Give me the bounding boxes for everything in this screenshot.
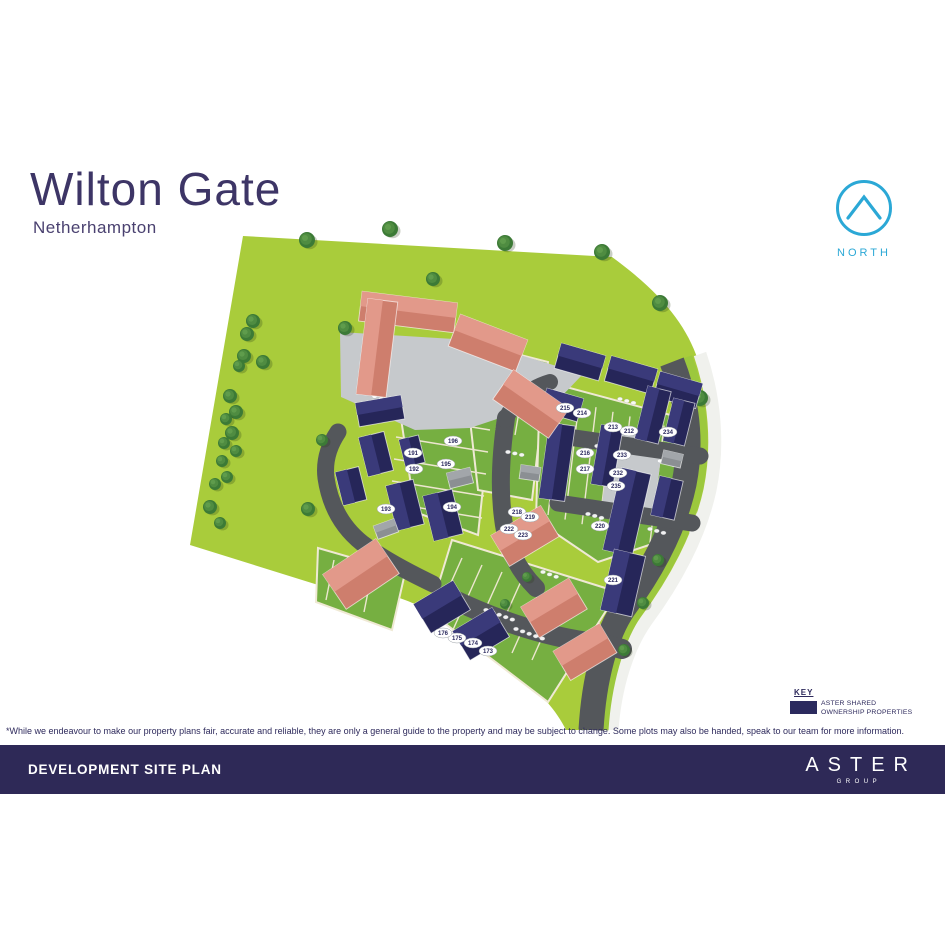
svg-text:216: 216 xyxy=(580,451,591,457)
site-plan-map: 1731741751761911921931941951962122132142… xyxy=(0,0,945,945)
plot-marker-217: 217 xyxy=(576,464,594,474)
svg-text:194: 194 xyxy=(447,505,458,511)
plot-marker-221: 221 xyxy=(604,575,622,585)
plot-marker-234: 234 xyxy=(659,427,677,437)
svg-text:223: 223 xyxy=(518,533,529,539)
brand-subtitle: GROUP xyxy=(796,779,917,785)
svg-text:213: 213 xyxy=(608,425,619,431)
garage xyxy=(519,465,541,482)
aster-group-logo: ASTER GROUP xyxy=(796,754,917,785)
plot-marker-193: 193 xyxy=(377,504,395,514)
plot-marker-176: 176 xyxy=(434,628,452,638)
svg-text:175: 175 xyxy=(452,636,463,642)
svg-text:220: 220 xyxy=(595,524,606,530)
footer-bar: DEVELOPMENT SITE PLAN ASTER GROUP xyxy=(0,745,945,794)
plot-marker-212: 212 xyxy=(620,426,638,436)
plot-marker-220: 220 xyxy=(591,521,609,531)
plot-marker-215: 215 xyxy=(556,403,574,413)
page-title: Wilton Gate xyxy=(30,162,281,216)
plot-marker-216: 216 xyxy=(576,448,594,458)
north-arrow-icon xyxy=(834,178,894,238)
svg-text:235: 235 xyxy=(611,484,622,490)
svg-text:174: 174 xyxy=(468,641,479,647)
svg-text:195: 195 xyxy=(441,462,452,468)
svg-text:221: 221 xyxy=(608,578,619,584)
map-key: KEY ASTER SHARED OWNERSHIP PROPERTIES xyxy=(790,688,940,717)
svg-text:222: 222 xyxy=(504,527,515,533)
key-swatch-aster xyxy=(790,701,817,714)
svg-text:215: 215 xyxy=(560,406,571,412)
plot-marker-235: 235 xyxy=(607,481,625,491)
svg-text:212: 212 xyxy=(624,429,635,435)
svg-text:233: 233 xyxy=(617,453,628,459)
key-heading: KEY xyxy=(794,688,940,697)
plot-marker-219: 219 xyxy=(521,512,539,522)
plot-marker-195: 195 xyxy=(437,459,455,469)
plot-marker-213: 213 xyxy=(604,422,622,432)
plot-marker-214: 214 xyxy=(573,408,591,418)
svg-text:196: 196 xyxy=(448,439,459,445)
plot-marker-192: 192 xyxy=(405,464,423,474)
plot-marker-223: 223 xyxy=(514,530,532,540)
footer-title: DEVELOPMENT SITE PLAN xyxy=(28,762,222,777)
svg-text:191: 191 xyxy=(408,451,419,457)
svg-text:234: 234 xyxy=(663,430,674,436)
plot-marker-194: 194 xyxy=(443,502,461,512)
plot-marker-191: 191 xyxy=(404,448,422,458)
plot-marker-232: 232 xyxy=(609,468,627,478)
north-indicator: NORTH xyxy=(831,178,897,259)
svg-text:173: 173 xyxy=(483,649,494,655)
svg-text:193: 193 xyxy=(381,507,392,513)
key-label: ASTER SHARED OWNERSHIP PROPERTIES xyxy=(821,700,912,717)
svg-text:218: 218 xyxy=(512,510,523,516)
svg-text:176: 176 xyxy=(438,631,449,637)
page-subtitle: Netherhampton xyxy=(33,218,157,238)
north-label: NORTH xyxy=(831,247,897,259)
svg-text:192: 192 xyxy=(409,467,420,473)
svg-text:214: 214 xyxy=(577,411,588,417)
plot-marker-174: 174 xyxy=(464,638,482,648)
plot-marker-173: 173 xyxy=(479,646,497,656)
brand-name: ASTER xyxy=(796,754,917,777)
svg-text:232: 232 xyxy=(613,471,624,477)
svg-text:219: 219 xyxy=(525,515,536,521)
disclaimer-text: *While we endeavour to make our property… xyxy=(6,726,942,736)
plot-marker-233: 233 xyxy=(613,450,631,460)
svg-text:217: 217 xyxy=(580,467,591,473)
plot-marker-196: 196 xyxy=(444,436,462,446)
page-background: 1731741751761911921931941951962122132142… xyxy=(0,0,945,945)
